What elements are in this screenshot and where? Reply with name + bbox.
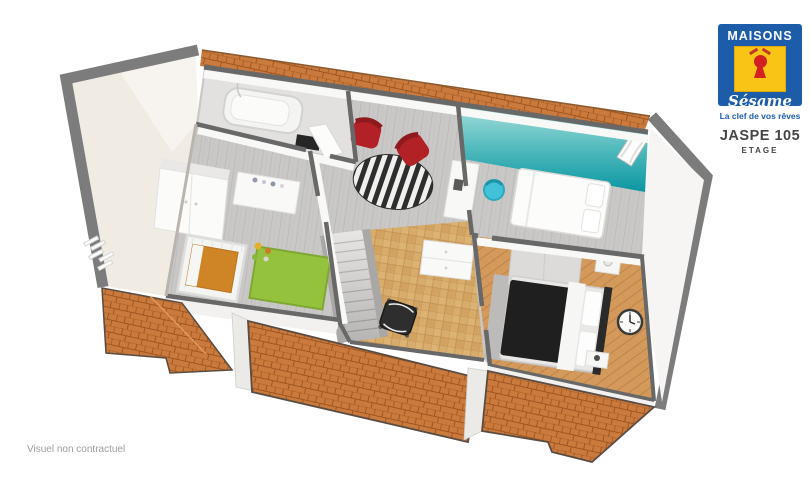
logo-word-bottom: Sésame	[718, 93, 802, 110]
wardrobe	[154, 158, 230, 240]
play-rug	[249, 247, 330, 310]
floorplan-3d-render	[0, 0, 811, 480]
plan-title: JASPE 105	[700, 128, 811, 144]
floorplan-page: MAISONS Sésame La clef de vos rêves JASP…	[0, 0, 811, 480]
nightstand-2	[585, 351, 609, 369]
baby-crib	[177, 235, 246, 302]
sideboard	[420, 240, 474, 280]
keyhole-icon	[734, 46, 786, 92]
plan-subtitle: ETAGE	[700, 146, 811, 155]
wall-clock	[618, 310, 642, 334]
logo-word-top: MAISONS	[718, 24, 802, 43]
maisons-sesame-logo: MAISONS Sésame	[718, 24, 802, 106]
logo-tagline: La clef de vos rêves	[700, 111, 811, 121]
disclaimer-text: Visuel non contractuel	[27, 444, 125, 455]
chair-cyan	[484, 180, 504, 200]
